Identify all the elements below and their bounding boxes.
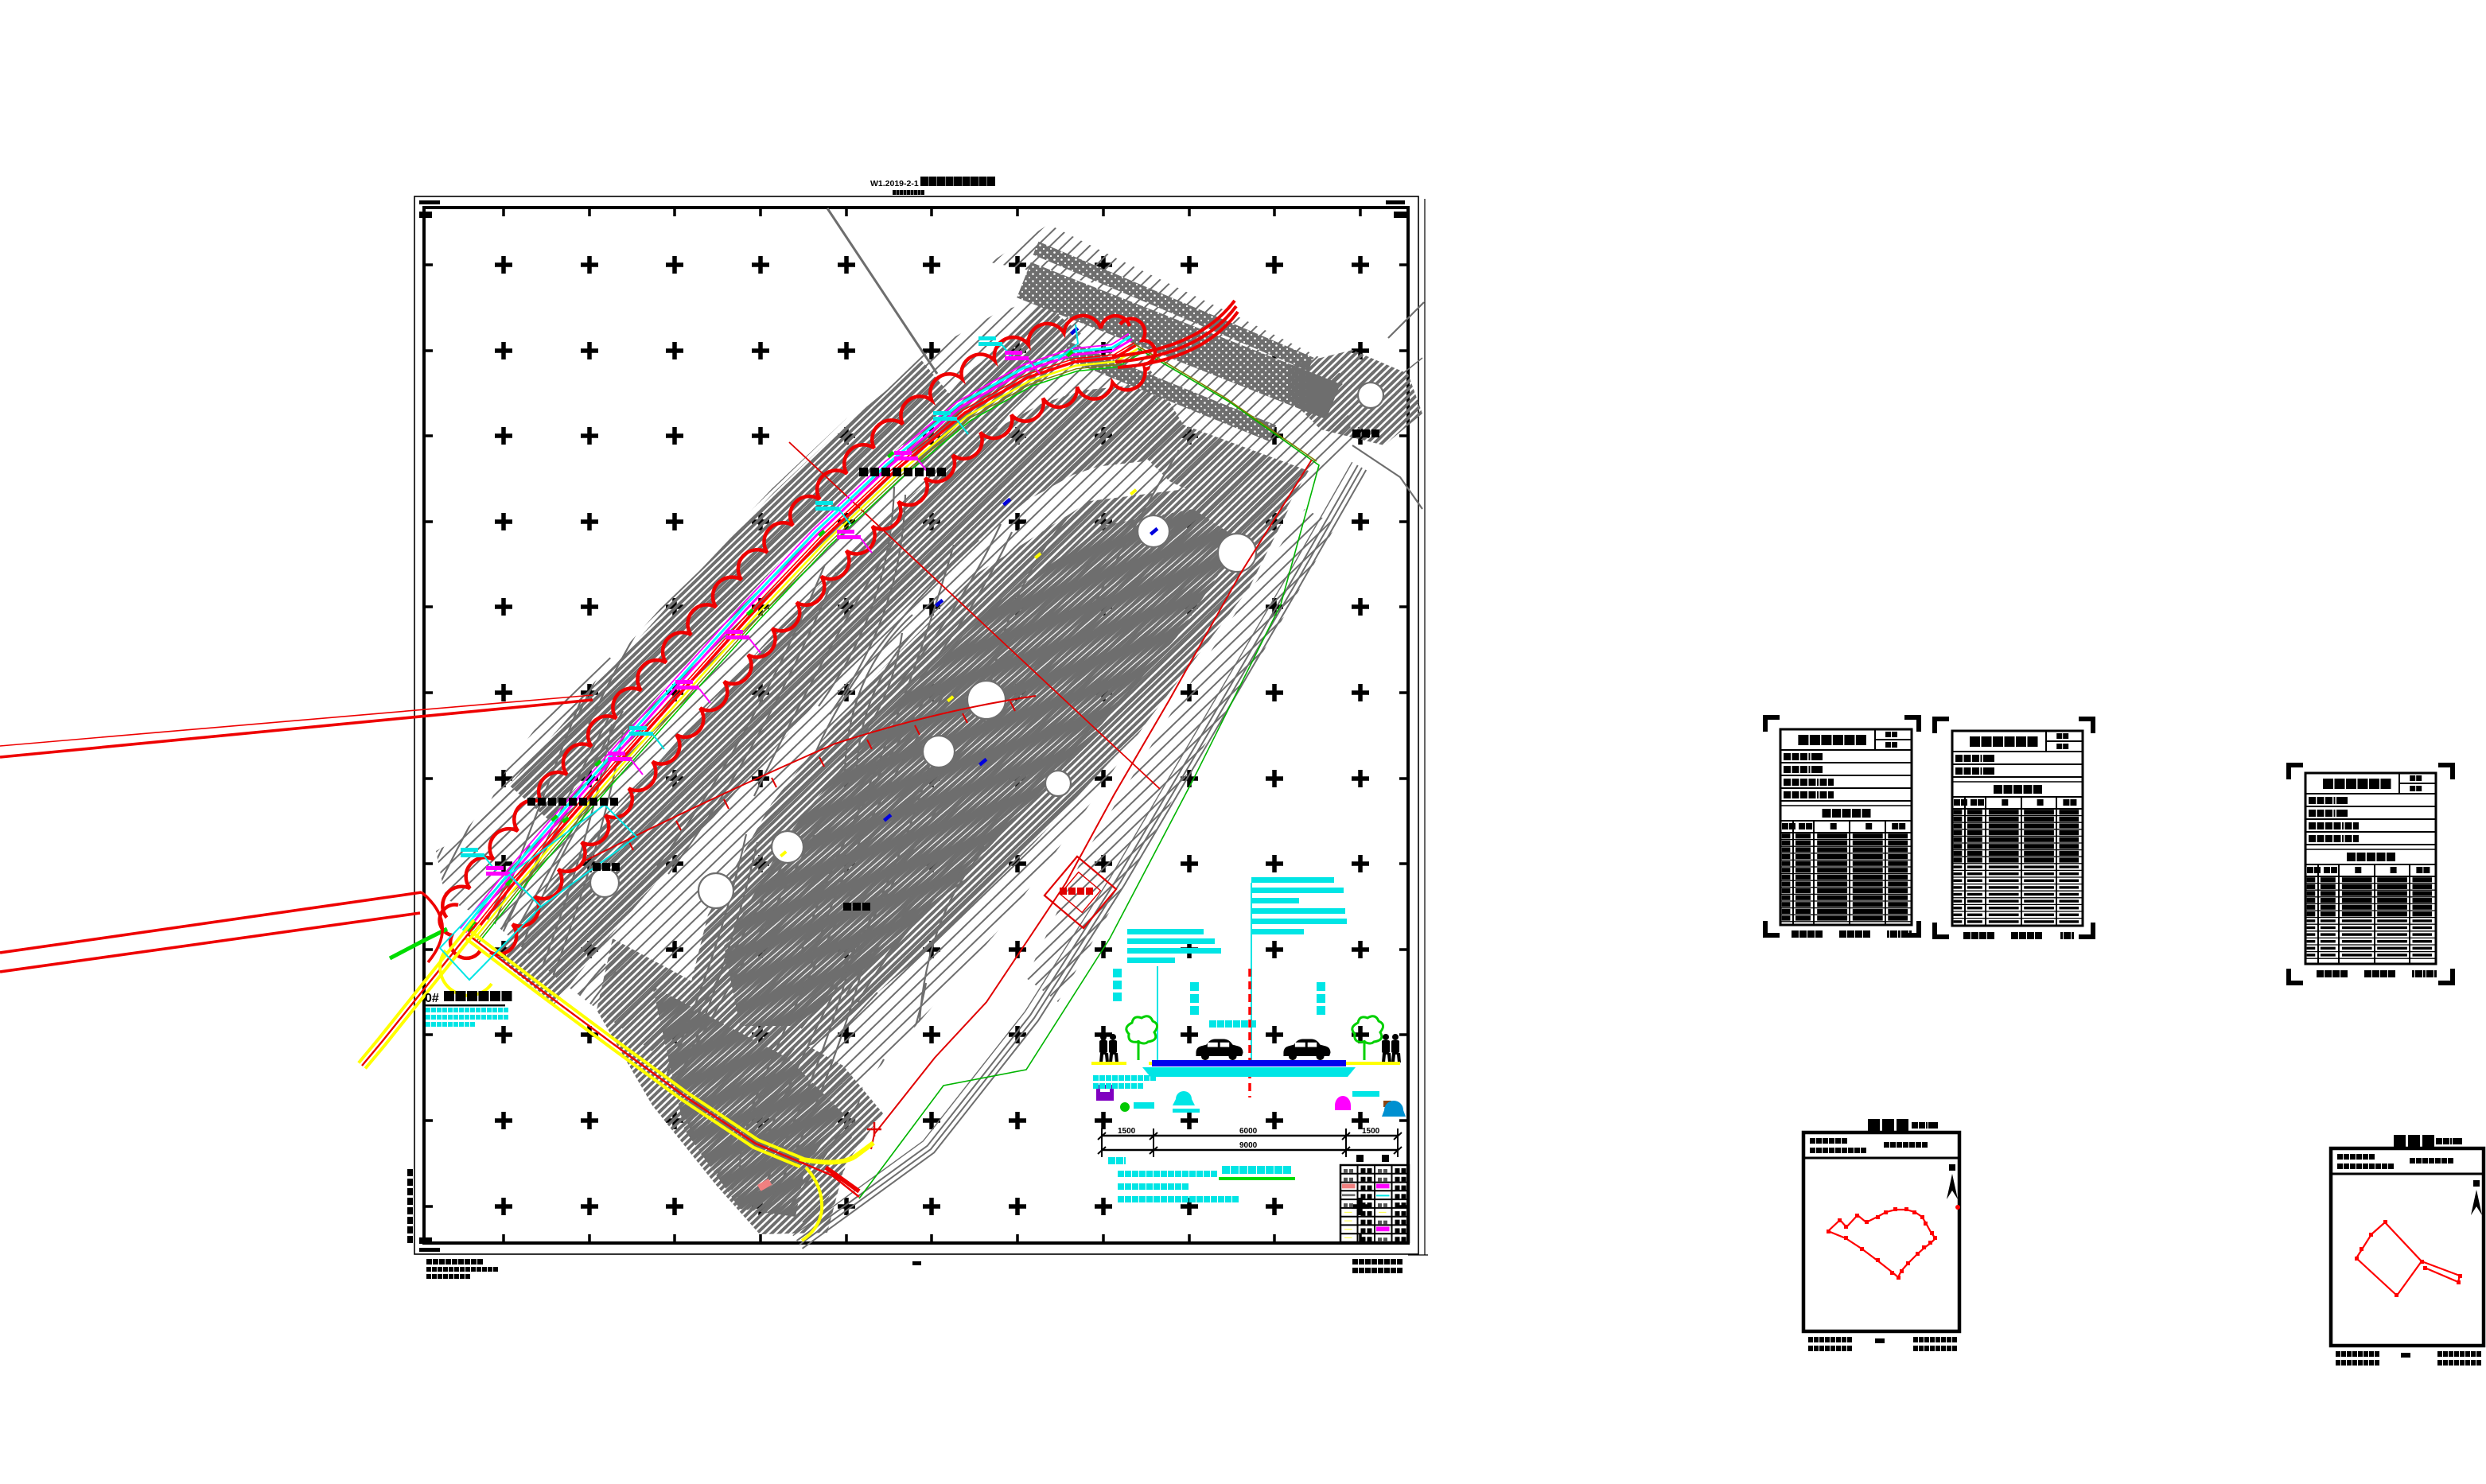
svg-text:1500: 1500 — [1362, 1127, 1380, 1136]
svg-text:0#: 0# — [425, 992, 439, 1005]
svg-text:1500: 1500 — [1118, 1127, 1136, 1136]
svg-text:9000: 9000 — [1239, 1141, 1258, 1150]
svg-text:W1.2019-2-1: W1.2019-2-1 — [870, 179, 919, 188]
svg-text:6000: 6000 — [1239, 1127, 1258, 1136]
